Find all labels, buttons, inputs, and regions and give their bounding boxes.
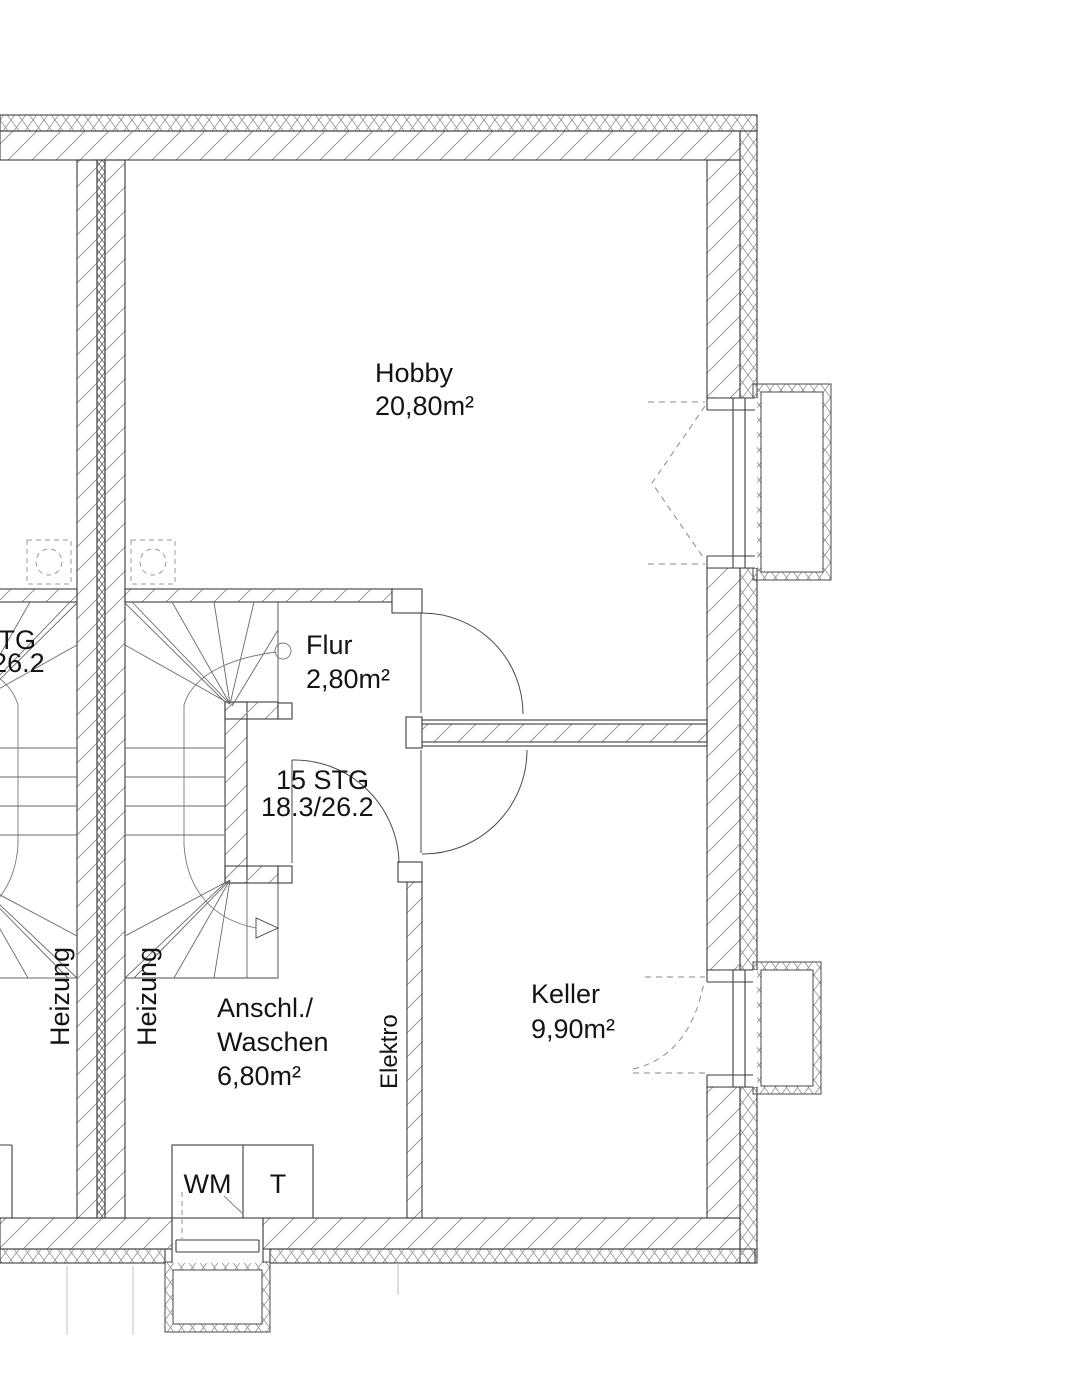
wall-right-insulation-mid <box>740 568 757 970</box>
wall-top-masonry <box>0 131 740 160</box>
stair-spindle-web <box>225 702 247 883</box>
door-flur-hobby <box>421 613 523 714</box>
walking-line-start-circle <box>275 643 291 659</box>
sump-pit-left <box>27 540 71 584</box>
wall-bottom-masonry-left <box>0 1218 172 1249</box>
stair-spindle-cap-bottom <box>278 866 292 883</box>
label-elektro: Elektro <box>377 1014 403 1089</box>
wall-right-masonry-mid <box>707 568 740 970</box>
plan-linework <box>0 0 1091 1400</box>
label-heizung-right-unit: Heizung <box>133 947 163 1046</box>
wall-hobby-divider-jamb <box>392 589 422 613</box>
wall-bottom-masonry-right <box>263 1218 740 1249</box>
wall-top-insulation <box>0 115 757 131</box>
sump-pit-right <box>131 540 175 584</box>
stair-treads <box>125 602 278 978</box>
room-area-waschen: 6,80m² <box>217 1062 301 1092</box>
wall-right-insulation-upper <box>740 131 757 398</box>
window-keller-opening-symbol <box>633 977 705 1073</box>
wall-hobby-keller-hatch <box>421 724 707 742</box>
room-area-keller: 9,90m² <box>531 1015 615 1045</box>
stair-right-unit <box>125 602 291 978</box>
room-area-flur: 2,80m² <box>306 665 390 695</box>
wall-right-insulation-lower <box>740 1087 757 1263</box>
wall-bottom-insulation-right <box>270 1249 755 1263</box>
room-label-anschluss: Anschl./ <box>217 994 313 1024</box>
light-well-bottom-inner <box>173 1270 262 1324</box>
room-label-waschen: Waschen <box>217 1028 329 1058</box>
window-hobby-opening <box>703 398 757 568</box>
room-area-hobby: 20,80m² <box>375 392 474 422</box>
label-washing-machine: WM <box>172 1170 243 1200</box>
wall-hobby-keller-jamb <box>406 717 422 748</box>
wall-hobby-divider-left-unit <box>0 589 77 602</box>
window-keller-opening <box>703 970 757 1087</box>
wall-right-masonry-lower <box>707 1087 740 1218</box>
wall-keller-west-jamb <box>398 862 422 882</box>
stair-spindle-cap-top <box>278 703 292 719</box>
left-unit-partial-box <box>0 1145 12 1218</box>
light-well-mid-inner <box>761 970 813 1086</box>
windows <box>172 398 757 1263</box>
floor-plan: Hobby 20,80m² Flur 2,80m² 15 STG 18.3/26… <box>0 0 1091 1400</box>
light-well-top-inner <box>761 392 823 572</box>
door-keller <box>421 750 527 854</box>
room-label-hobby: Hobby <box>375 359 453 389</box>
wall-right-masonry-upper <box>707 160 740 398</box>
party-wall <box>77 160 125 1218</box>
wall-keller-west <box>407 882 422 1218</box>
stair-spindle-flange-bottom <box>225 866 278 883</box>
walking-line-arrow <box>256 918 278 938</box>
room-label-flur: Flur <box>306 631 353 661</box>
stair-label-dimensions-left-unit: 18.3/26.2 <box>0 649 45 679</box>
party-wall-left-leaf <box>77 160 97 1218</box>
party-wall-right-leaf <box>105 160 125 1218</box>
label-dryer: T <box>243 1170 313 1200</box>
label-heizung-left-unit: Heizung <box>46 947 76 1046</box>
stair-label-dimensions: 18.3/26.2 <box>261 793 374 823</box>
window-hobby-opening-symbol <box>648 402 705 564</box>
party-wall-joint <box>97 160 105 1218</box>
room-label-keller: Keller <box>531 980 600 1010</box>
wall-hobby-divider <box>125 589 392 602</box>
wall-bottom-insulation-left <box>0 1249 165 1263</box>
